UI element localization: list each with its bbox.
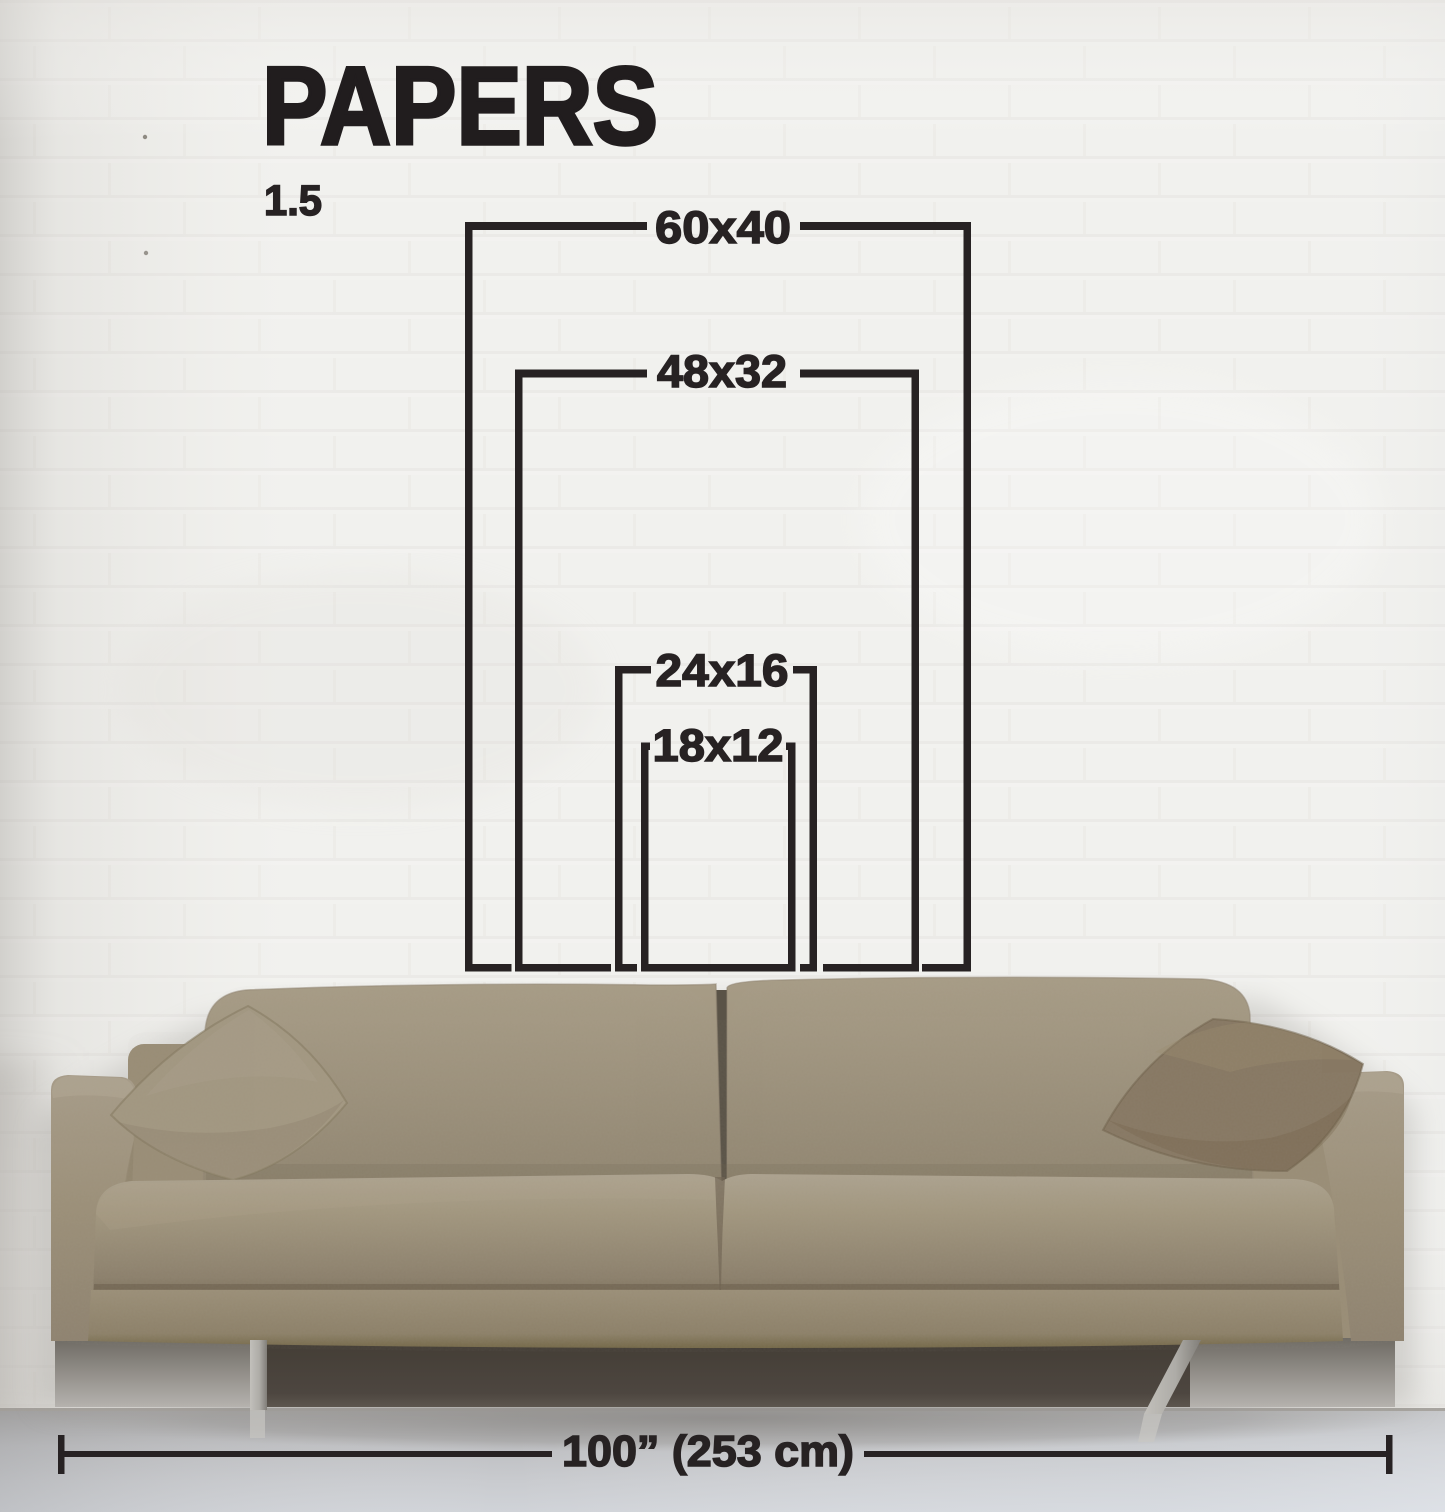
svg-text:100” (253 cm): 100” (253 cm) (562, 1427, 854, 1476)
svg-text:24x16: 24x16 (656, 645, 789, 696)
svg-text:1.5: 1.5 (264, 177, 322, 225)
svg-text:60x40: 60x40 (655, 202, 791, 253)
svg-text:48x32: 48x32 (657, 346, 787, 397)
svg-text:18x12: 18x12 (653, 720, 784, 771)
svg-text:PAPERS: PAPERS (262, 45, 658, 168)
